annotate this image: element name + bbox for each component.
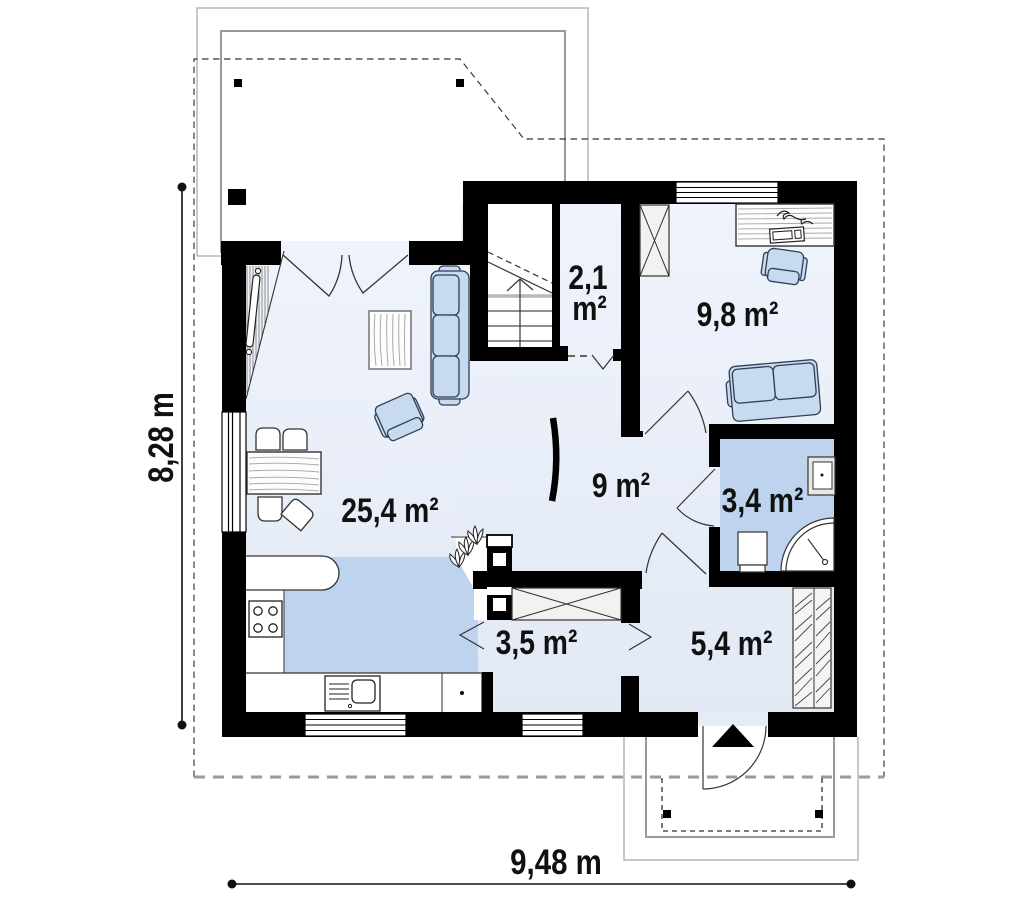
svg-text:8,28 m: 8,28 m xyxy=(141,392,180,483)
svg-text:9,48 m: 9,48 m xyxy=(510,841,602,881)
svg-text:9 m²: 9 m² xyxy=(592,465,650,504)
svg-text:m²: m² xyxy=(572,288,607,327)
svg-text:3,5 m²: 3,5 m² xyxy=(496,622,578,661)
svg-text:3,4 m²: 3,4 m² xyxy=(722,480,804,519)
svg-text:25,4 m²: 25,4 m² xyxy=(341,490,438,529)
svg-text:9,8 m²: 9,8 m² xyxy=(697,294,779,333)
svg-text:5,4 m²: 5,4 m² xyxy=(691,623,773,662)
